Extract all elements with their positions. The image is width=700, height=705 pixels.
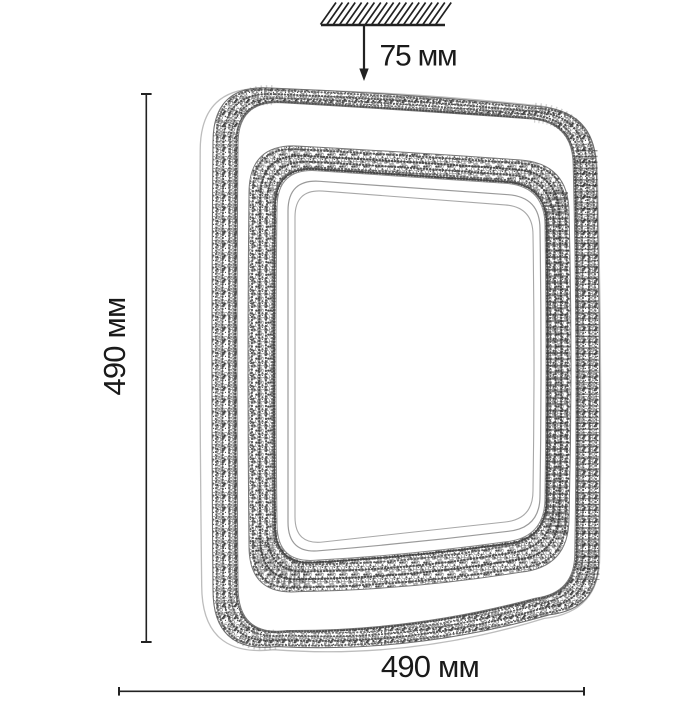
svg-text:490 мм: 490 мм: [381, 649, 479, 684]
svg-text:490 мм: 490 мм: [97, 297, 132, 395]
svg-text:75 мм: 75 мм: [380, 40, 457, 73]
